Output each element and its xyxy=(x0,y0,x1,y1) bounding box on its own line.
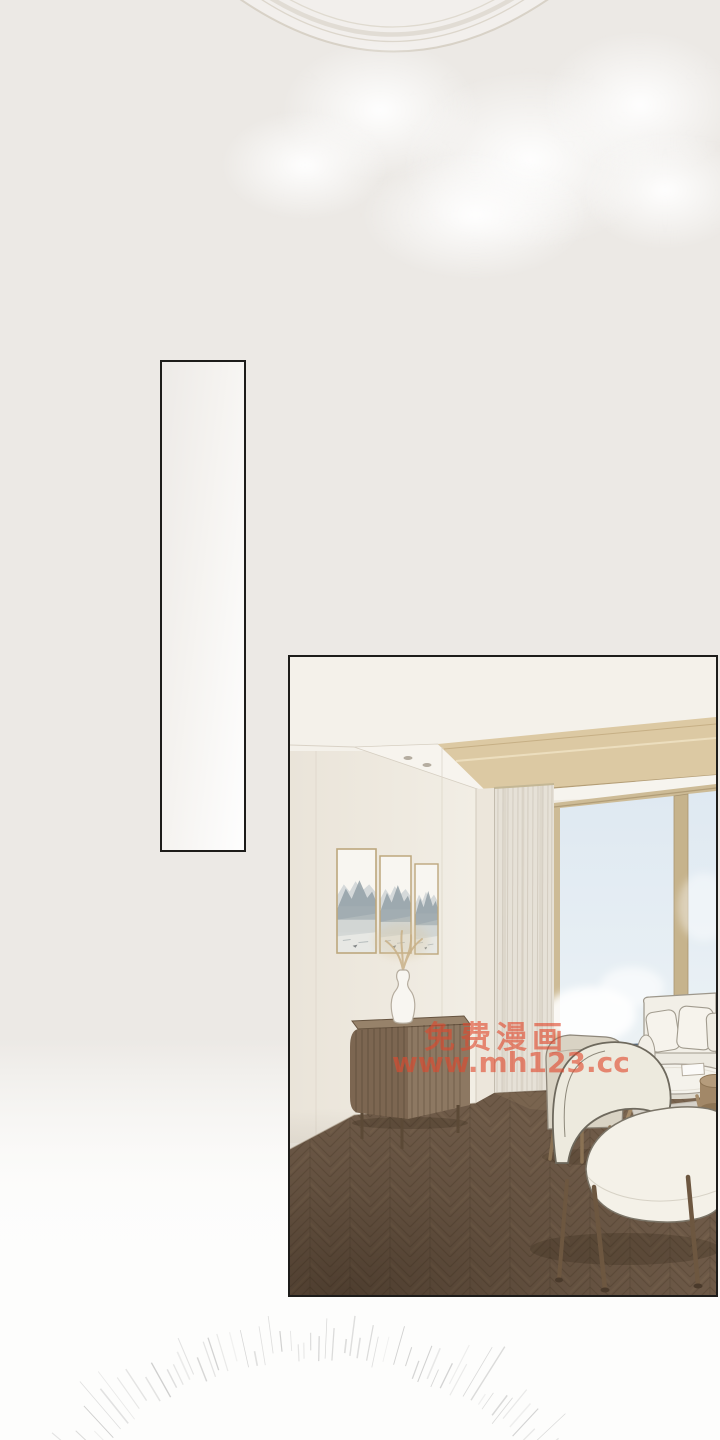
sofa-pillows xyxy=(645,1006,716,1054)
painting-left xyxy=(337,849,376,953)
comic-page: 免费漫画 www.mh123.cc xyxy=(0,0,720,1440)
dish-rim-arcs-decoration xyxy=(140,0,640,126)
room-illustration xyxy=(290,657,716,1295)
room-panel xyxy=(288,655,718,1297)
table-tray xyxy=(682,1063,705,1076)
cloud-splotch xyxy=(360,150,590,280)
speed-lines-decoration xyxy=(0,1300,720,1440)
watermark-text-url: www.mh123.cc xyxy=(392,1049,630,1077)
empty-vertical-panel xyxy=(160,360,246,852)
cloud-splotch xyxy=(220,110,390,220)
cloud-splotch xyxy=(580,130,720,250)
